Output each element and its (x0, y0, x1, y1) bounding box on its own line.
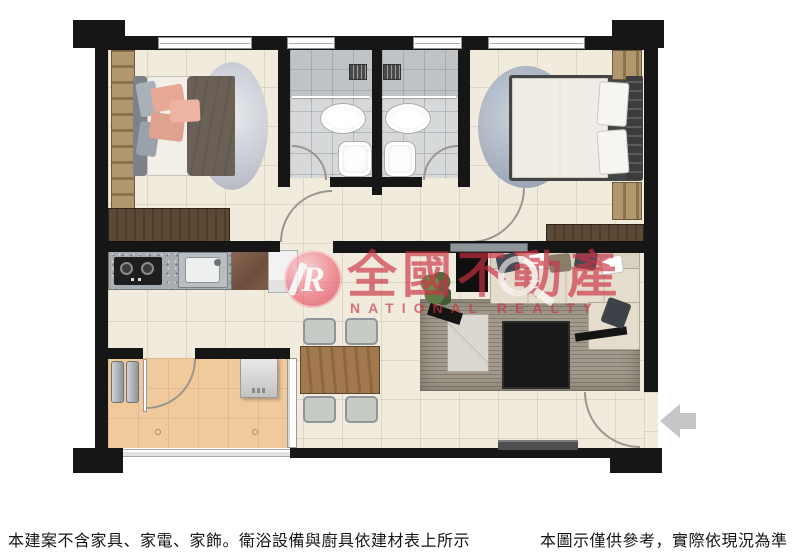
dresser-bedroom1 (108, 208, 230, 242)
sofa-seat (490, 268, 640, 304)
dining-table (300, 346, 380, 394)
balcony-door-leaf (143, 359, 147, 412)
window-bathroom2 (413, 37, 462, 49)
balcony-drain-2 (252, 429, 258, 435)
wall-bath-bed2 (458, 48, 470, 187)
window-bathroom1 (287, 37, 335, 49)
bed2-pillow-1 (597, 81, 630, 127)
wall-bed1-bottom (95, 241, 280, 252)
column-bottom-right (610, 448, 662, 473)
tv (456, 253, 488, 292)
balcony-rail (123, 449, 290, 457)
tv-console (450, 243, 528, 252)
toilet-bathroom1 (320, 103, 366, 134)
stove-burner-1 (120, 262, 133, 275)
wardrobe-bedroom2-bottom (612, 182, 642, 220)
wall-balcony-top-b (195, 348, 290, 359)
entrance-arrow-tail (680, 413, 696, 429)
dining-chair-1 (303, 318, 336, 345)
shower-fixture-2 (383, 64, 401, 80)
coffee-table (502, 321, 570, 389)
dining-chair-2 (345, 318, 378, 345)
wall-bath-divider (372, 48, 382, 195)
dresser-bedroom2 (546, 224, 644, 242)
balcony-drain-1 (155, 429, 161, 435)
footer-left-note: 本建案不含家具、家電、家飾。衛浴設備與廚具依建材表上所示 (8, 527, 470, 551)
toilet-bathroom2 (385, 103, 431, 134)
entrance-arrow-icon (660, 404, 680, 438)
shower-glass-2 (382, 96, 456, 98)
window-bedroom2 (488, 37, 585, 49)
shower-glass-1 (292, 96, 370, 98)
balcony-sliding-door (287, 358, 297, 448)
plant (421, 271, 451, 307)
sofa-pillow-5 (600, 255, 624, 276)
dining-chair-4 (345, 396, 378, 423)
wall-right (644, 36, 658, 392)
washer-2 (126, 361, 139, 403)
bed2-mattress (512, 78, 608, 178)
stove-burner-2 (141, 262, 154, 275)
wall-bath-bottom (330, 177, 422, 187)
wardrobe-bedroom1 (111, 50, 135, 210)
floorplan-page: { "watermark": { "logo_letter": "R", "br… (0, 0, 796, 555)
wall-balcony-top-a (95, 348, 143, 359)
wall-bottom (290, 448, 662, 458)
footer-right-note: 本圖示僅供參考，實際依現況為準 (540, 527, 788, 551)
fridge (268, 250, 298, 293)
heater-grill (252, 388, 266, 393)
bed2-pillow-2 (597, 129, 630, 175)
column-bottom-left (73, 448, 123, 473)
kitchen-faucet (214, 259, 221, 266)
entry-threshold-floor (644, 392, 658, 448)
sofa-pillow-3 (548, 253, 572, 273)
dining-chair-3 (303, 396, 336, 423)
washer-1 (111, 361, 124, 403)
wall-bed1-bath (278, 48, 290, 187)
sink-bathroom2 (384, 141, 416, 177)
kitchen-cabinet (232, 250, 268, 290)
stove-knobs (131, 278, 141, 281)
bed1-blanket (187, 76, 235, 176)
sink-bathroom1 (338, 141, 372, 177)
shoe-cabinet (498, 440, 578, 450)
bed1-pink-pillow-3 (169, 99, 200, 123)
shower-fixture-1 (349, 64, 367, 80)
window-bedroom1 (158, 37, 252, 49)
